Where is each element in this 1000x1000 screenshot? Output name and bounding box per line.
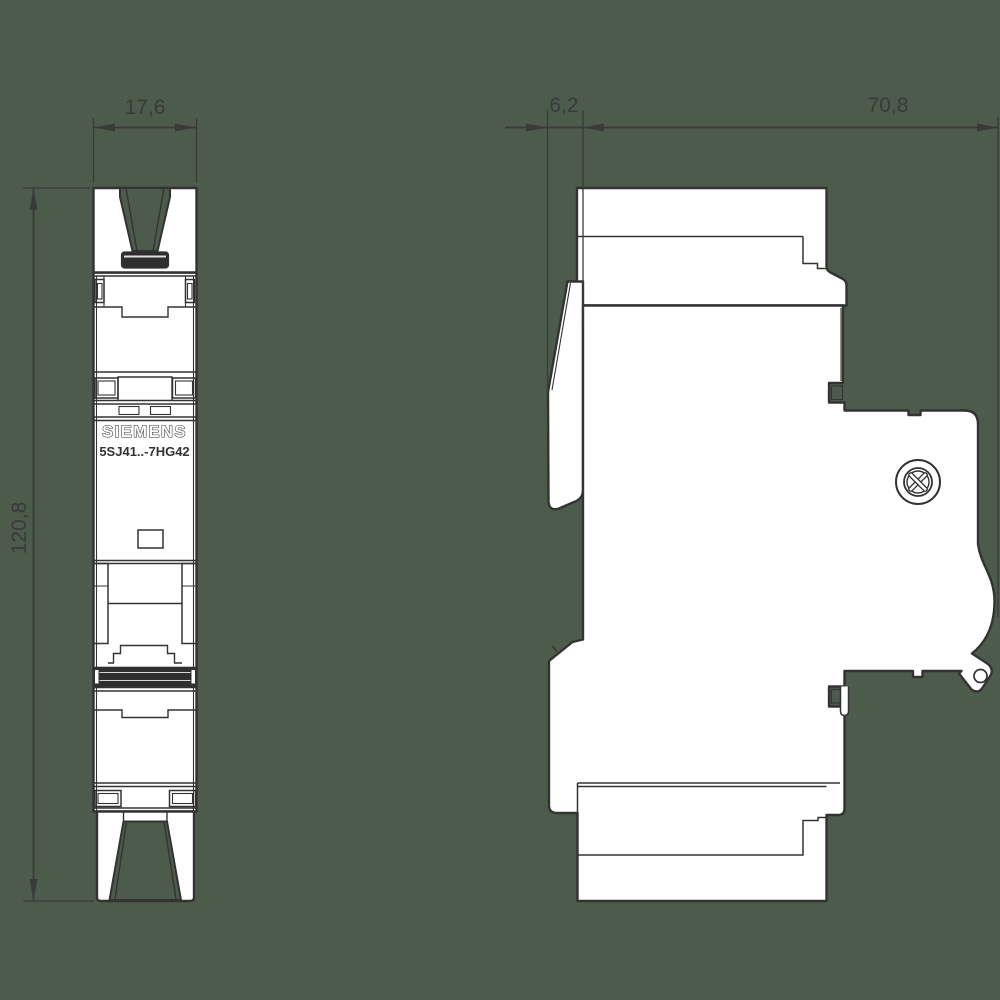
part-number: 5SJ41..-7HG42 [99, 444, 189, 459]
front-height-dimension: 120,8 [8, 188, 94, 901]
side-depth-label: 70,8 [868, 94, 909, 117]
clamp-screw-icon [974, 670, 987, 683]
side-top-cap [577, 188, 847, 306]
din-clip-back-slot-top [832, 386, 843, 400]
din-clip-lever [548, 282, 583, 510]
front-height-label: 120,8 [8, 502, 31, 555]
siemens-logo: SIEMENS [102, 423, 187, 441]
side-body [549, 306, 995, 902]
front-top-clamp [122, 252, 169, 268]
side-offset-label: 6,2 [549, 94, 578, 117]
front-width-dimension: 17,6 [94, 96, 197, 183]
din-clip-pin [841, 687, 849, 716]
drawing-canvas: SIEMENS 5SJ41..-7HG42 17,6 120,8 [0, 0, 1000, 1000]
front-view: SIEMENS 5SJ41..-7HG42 17,6 120,8 [8, 96, 197, 901]
front-top-clamp-slot [124, 256, 166, 258]
technical-drawing: SIEMENS 5SJ41..-7HG42 17,6 120,8 [0, 0, 1000, 1000]
front-body [94, 273, 197, 812]
front-width-label: 17,6 [125, 96, 166, 119]
terminal-screw-icon [896, 460, 940, 504]
side-view: 6,2 70,8 [505, 94, 998, 901]
toggle-handle [94, 668, 197, 687]
